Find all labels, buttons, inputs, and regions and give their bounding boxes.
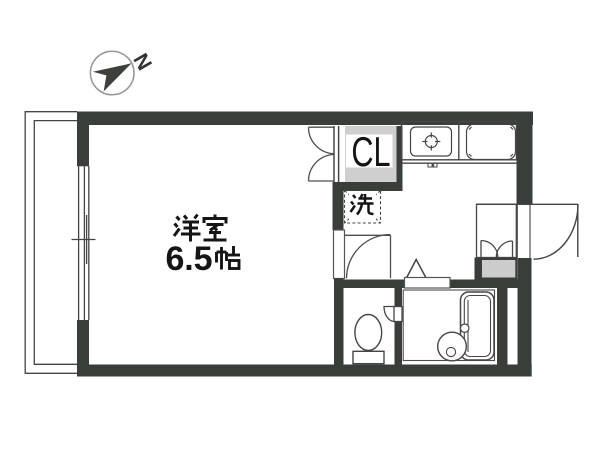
svg-text:6.5: 6.5 bbox=[166, 240, 213, 278]
svg-text:CL: CL bbox=[351, 128, 390, 175]
